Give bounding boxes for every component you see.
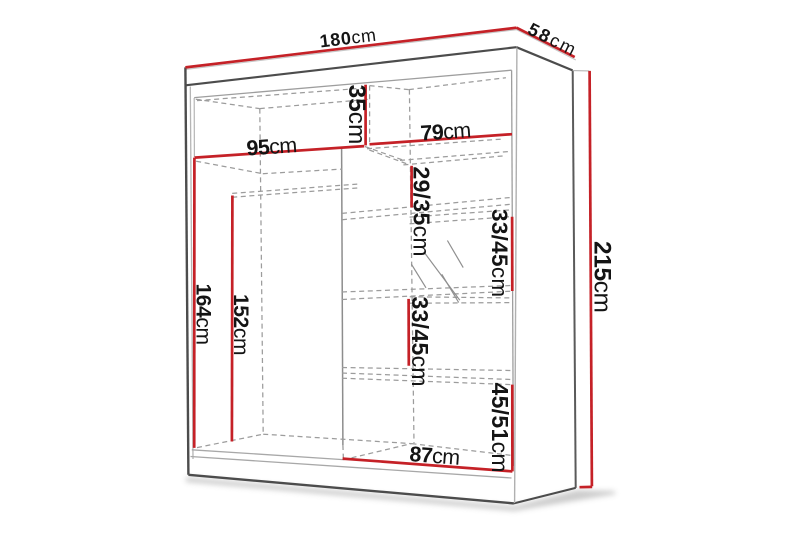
svg-text:33/45cm: 33/45cm bbox=[487, 209, 512, 297]
svg-text:29/35cm: 29/35cm bbox=[409, 167, 435, 257]
svg-text:79cm: 79cm bbox=[420, 118, 472, 145]
svg-text:152cm: 152cm bbox=[229, 294, 252, 355]
svg-text:45/51cm: 45/51cm bbox=[487, 383, 513, 473]
svg-text:35cm: 35cm bbox=[343, 85, 370, 145]
svg-text:87cm: 87cm bbox=[409, 442, 461, 470]
svg-text:164cm: 164cm bbox=[192, 284, 215, 345]
svg-text:33/45cm: 33/45cm bbox=[407, 297, 433, 387]
svg-text:95cm: 95cm bbox=[246, 133, 298, 160]
svg-text:215cm: 215cm bbox=[589, 241, 616, 313]
